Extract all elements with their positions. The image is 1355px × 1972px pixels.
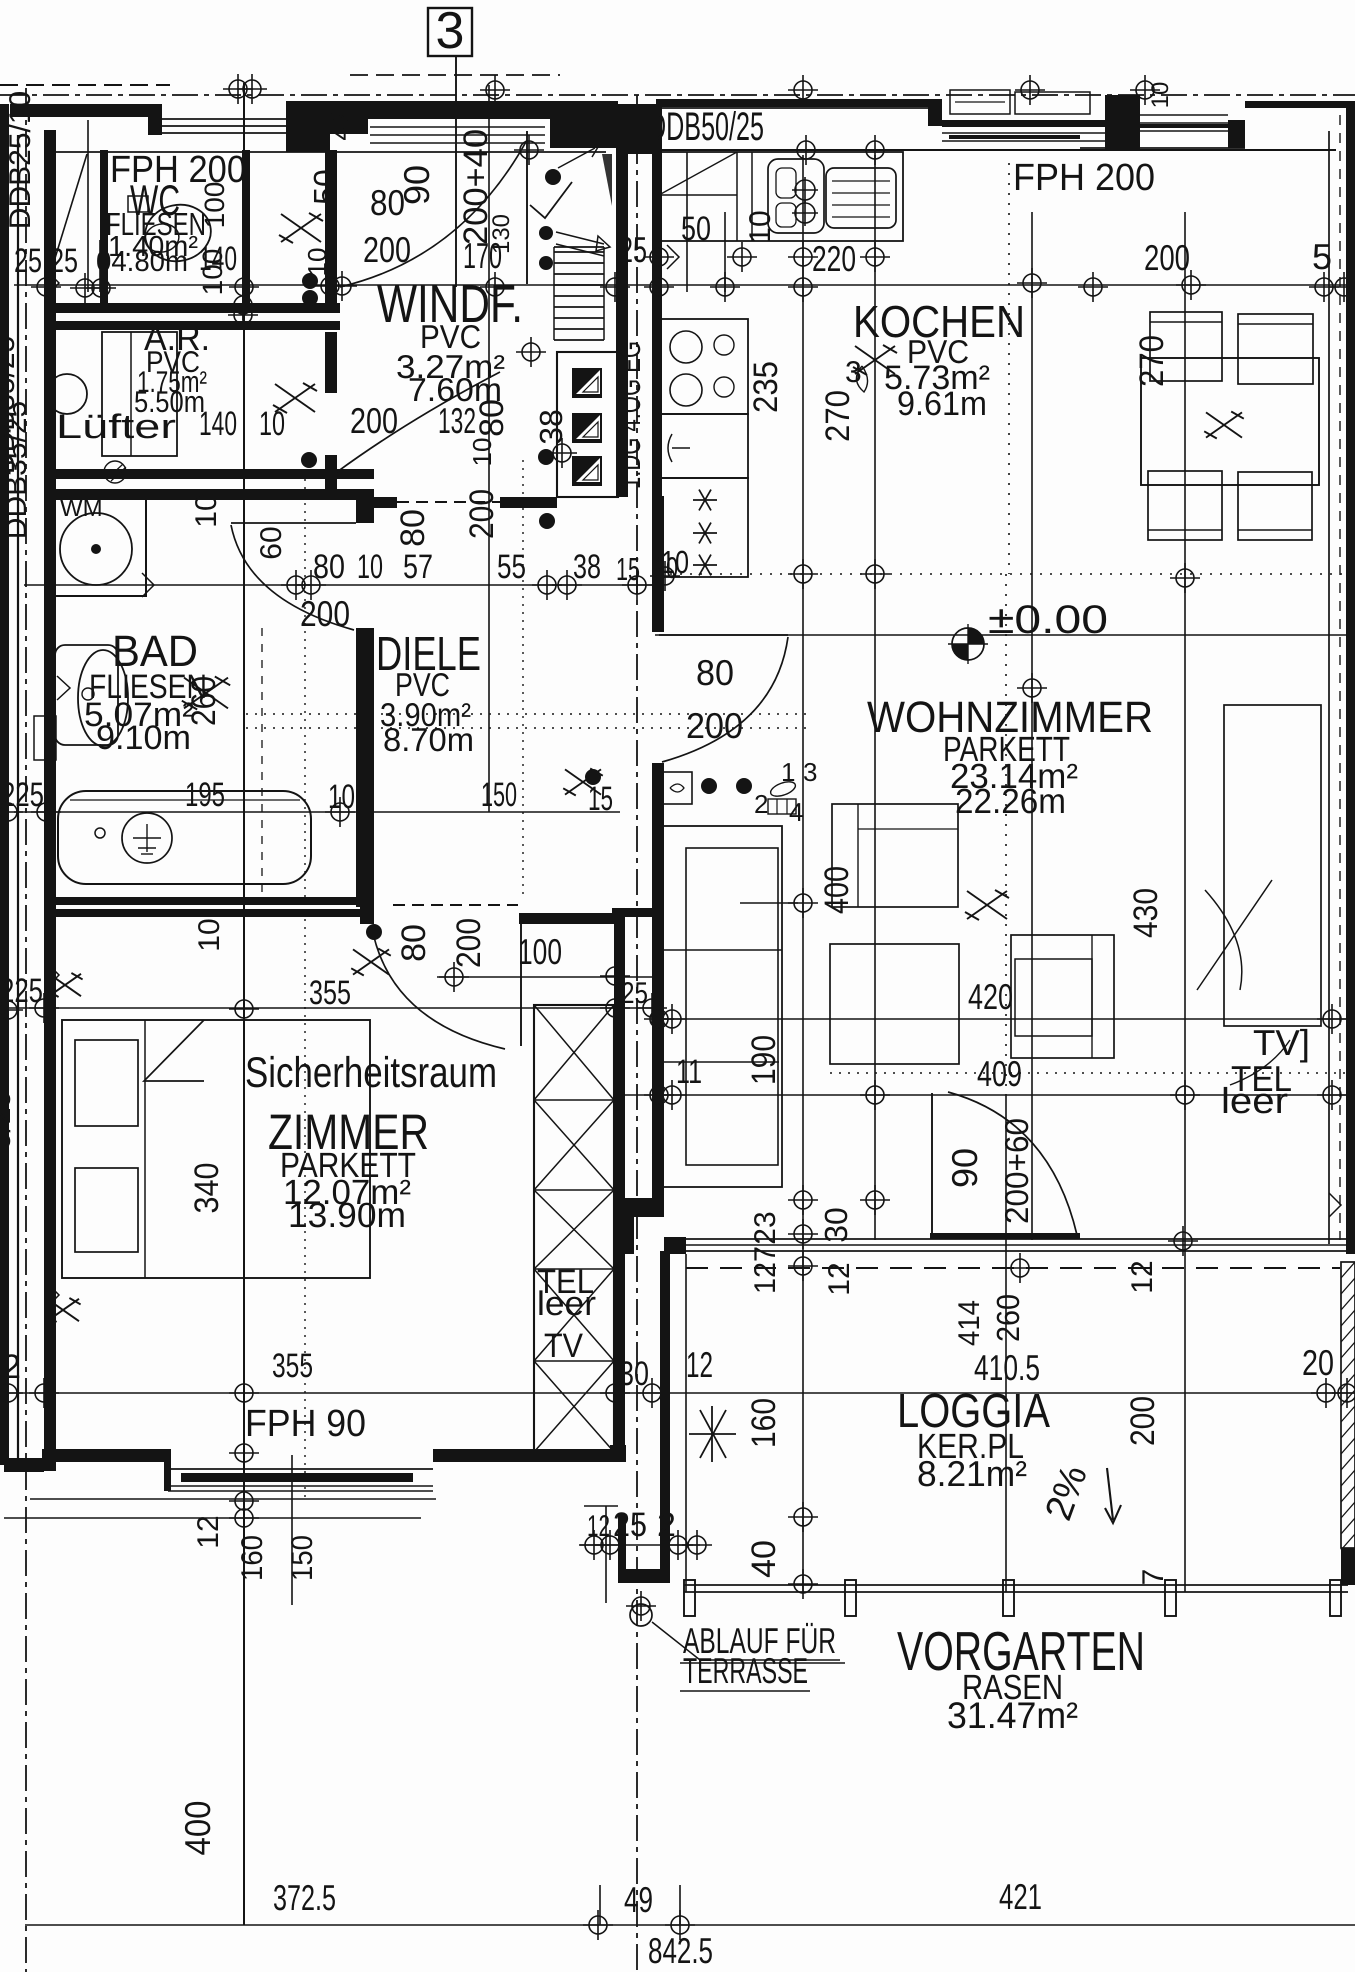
- svg-text:410.5: 410.5: [974, 1347, 1040, 1388]
- svg-text:340: 340: [188, 1163, 226, 1214]
- svg-text:140: 140: [199, 240, 237, 278]
- svg-text:80: 80: [395, 924, 433, 962]
- svg-text:80: 80: [394, 509, 432, 547]
- svg-text:20: 20: [1302, 1342, 1334, 1383]
- svg-text:414: 414: [953, 1300, 986, 1346]
- svg-text:40: 40: [745, 1540, 783, 1578]
- svg-text:220: 220: [812, 238, 856, 279]
- svg-text:FPH 90: FPH 90: [245, 1403, 366, 1445]
- svg-text:100: 100: [199, 182, 230, 229]
- svg-text:10: 10: [190, 494, 223, 527]
- svg-text:160: 160: [236, 1535, 269, 1581]
- svg-text:355: 355: [309, 974, 351, 1012]
- svg-text:10: 10: [193, 918, 226, 951]
- svg-text:200+60: 200+60: [998, 1118, 1035, 1224]
- svg-text:leer: leer: [1221, 1080, 1288, 1121]
- svg-text:25: 25: [14, 242, 42, 280]
- svg-text:200: 200: [1144, 237, 1190, 278]
- svg-text:50: 50: [307, 169, 343, 205]
- svg-text:420: 420: [968, 976, 1013, 1017]
- svg-text:12: 12: [686, 1344, 713, 1385]
- svg-text:421: 421: [999, 1876, 1042, 1917]
- svg-text:22.26m: 22.26m: [955, 782, 1066, 821]
- svg-text:160: 160: [745, 1398, 783, 1448]
- svg-text:Sicherheitsraum: Sicherheitsraum: [245, 1049, 497, 1097]
- svg-text:15: 15: [588, 780, 613, 818]
- svg-text:leer: leer: [537, 1285, 596, 1323]
- svg-text:127: 127: [749, 1246, 782, 1294]
- svg-text:15: 15: [616, 551, 640, 587]
- svg-text:842.5: 842.5: [648, 1930, 713, 1971]
- svg-text:130: 130: [488, 214, 515, 254]
- svg-text:80: 80: [696, 652, 734, 693]
- svg-text:12: 12: [823, 1262, 856, 1295]
- svg-text:25: 25: [613, 1506, 647, 1544]
- svg-text:FPH 200: FPH 200: [1013, 157, 1155, 199]
- svg-text:80: 80: [473, 399, 511, 437]
- svg-text:12: 12: [587, 1510, 610, 1543]
- svg-text:80: 80: [313, 548, 345, 586]
- svg-text:200: 200: [363, 229, 411, 270]
- svg-text:10: 10: [744, 210, 777, 243]
- svg-text:10: 10: [302, 248, 332, 277]
- svg-text:200: 200: [463, 489, 501, 539]
- svg-text:100: 100: [518, 931, 562, 972]
- svg-text:30: 30: [619, 1355, 649, 1393]
- svg-text:11: 11: [676, 1053, 702, 1091]
- svg-text:10: 10: [467, 438, 497, 467]
- svg-text:10: 10: [328, 778, 355, 816]
- svg-text:90: 90: [396, 165, 437, 205]
- svg-text:57: 57: [403, 548, 433, 586]
- svg-text:430: 430: [1127, 888, 1165, 938]
- svg-text:10: 10: [1147, 82, 1174, 109]
- svg-text:DDB35/25: DDB35/25: [0, 401, 33, 539]
- svg-text:400: 400: [177, 1801, 218, 1856]
- svg-text:3: 3: [436, 2, 465, 60]
- svg-text:5/25: 5/25: [0, 1091, 17, 1149]
- svg-text:12: 12: [192, 1515, 225, 1548]
- svg-text:25: 25: [50, 242, 78, 280]
- svg-text:1: 1: [781, 757, 795, 787]
- svg-text:355: 355: [272, 1347, 313, 1385]
- svg-text:1.DG 4.OG EG: 1.DG 4.OG EG: [614, 341, 647, 489]
- svg-text:Lüfter: Lüfter: [56, 408, 176, 446]
- svg-text:2: 2: [2, 1348, 21, 1386]
- svg-text:270: 270: [1133, 335, 1171, 387]
- svg-text:372.5: 372.5: [273, 1877, 336, 1918]
- svg-text:9.10m: 9.10m: [96, 719, 191, 757]
- svg-text:12: 12: [1126, 1260, 1159, 1293]
- svg-text:409: 409: [977, 1053, 1022, 1094]
- svg-text:8.21m²: 8.21m²: [917, 1453, 1027, 1494]
- svg-text:13.90m: 13.90m: [288, 1196, 406, 1235]
- svg-text:90: 90: [944, 1148, 985, 1188]
- svg-text:200: 200: [1124, 1396, 1162, 1446]
- svg-text:49: 49: [624, 1879, 653, 1920]
- svg-text:225: 225: [0, 972, 43, 1010]
- svg-text:WM: WM: [60, 495, 103, 522]
- svg-text:10: 10: [259, 405, 285, 443]
- svg-text:10: 10: [357, 548, 383, 586]
- svg-text:TV: TV: [544, 1327, 583, 1365]
- svg-text:DDB50/25: DDB50/25: [648, 105, 764, 149]
- svg-text:260: 260: [990, 1294, 1026, 1342]
- svg-text:200: 200: [450, 918, 488, 968]
- svg-text:195: 195: [185, 776, 225, 814]
- svg-text:150: 150: [286, 1535, 319, 1581]
- svg-text:9.61m: 9.61m: [897, 385, 987, 423]
- svg-text:5: 5: [1312, 236, 1332, 277]
- svg-text:200: 200: [350, 400, 398, 441]
- svg-text:30: 30: [818, 1207, 854, 1243]
- svg-text:2: 2: [754, 789, 768, 819]
- svg-text:7: 7: [1137, 1569, 1170, 1586]
- svg-text:132: 132: [438, 400, 476, 441]
- svg-text:225: 225: [1, 776, 44, 814]
- svg-text:8.70m: 8.70m: [383, 721, 474, 758]
- svg-text:±0.00: ±0.00: [988, 598, 1108, 642]
- svg-text:400: 400: [818, 866, 856, 914]
- svg-text:38: 38: [533, 409, 569, 445]
- svg-text:23: 23: [749, 1211, 782, 1244]
- svg-text:140: 140: [199, 405, 237, 443]
- svg-text:150: 150: [481, 776, 517, 814]
- svg-text:60: 60: [255, 526, 288, 559]
- svg-text:42: 42: [325, 109, 356, 140]
- svg-text:TERRASSE: TERRASSE: [683, 1650, 808, 1691]
- svg-text:4: 4: [789, 797, 803, 827]
- svg-text:3: 3: [803, 757, 817, 787]
- svg-text:25: 25: [621, 977, 648, 1010]
- svg-text:200: 200: [300, 593, 350, 634]
- svg-text:50: 50: [681, 210, 711, 248]
- svg-text:3: 3: [845, 356, 862, 389]
- svg-text:260: 260: [185, 676, 223, 726]
- svg-text:2: 2: [657, 1506, 676, 1544]
- svg-text:235: 235: [747, 361, 785, 413]
- svg-text:38: 38: [573, 548, 601, 586]
- svg-text:04.80m: 04.80m: [96, 246, 188, 278]
- svg-text:200: 200: [686, 705, 743, 746]
- svg-text:55: 55: [497, 548, 526, 586]
- svg-text:DDB25/10: DDB25/10: [4, 91, 37, 229]
- svg-text:10: 10: [654, 552, 678, 585]
- svg-text:TV]: TV]: [1253, 1022, 1310, 1063]
- svg-text:270: 270: [819, 390, 857, 442]
- svg-text:190: 190: [745, 1035, 783, 1085]
- svg-text:31.47m²: 31.47m²: [947, 1695, 1078, 1736]
- svg-text:25: 25: [619, 229, 647, 270]
